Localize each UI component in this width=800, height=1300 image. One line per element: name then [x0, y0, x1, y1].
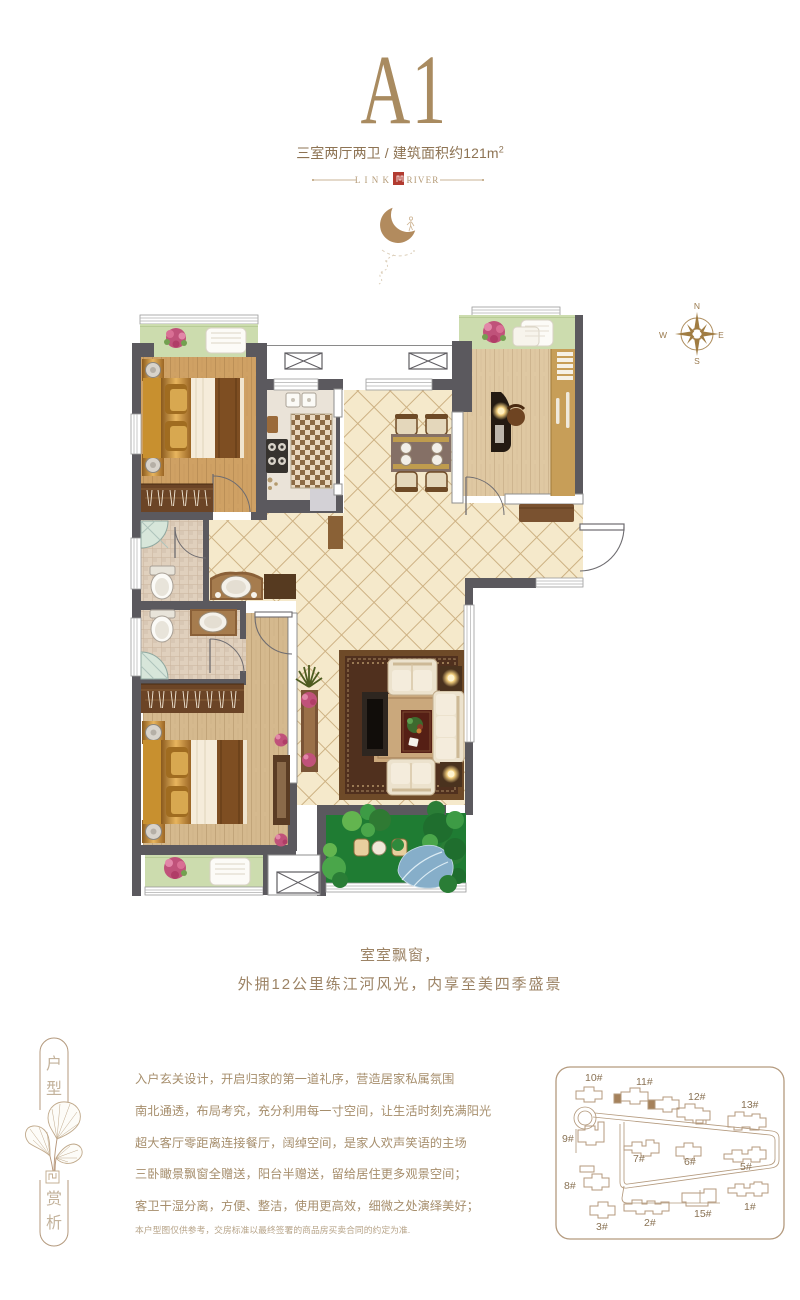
svg-text:W: W — [659, 330, 667, 340]
svg-text:13#: 13# — [741, 1099, 759, 1111]
svg-text:1#: 1# — [744, 1201, 756, 1213]
svg-text:10#: 10# — [585, 1072, 603, 1084]
svg-text:E: E — [718, 330, 724, 340]
svg-text:2#: 2# — [644, 1217, 656, 1229]
svg-text:型: 型 — [46, 1080, 62, 1098]
svg-text:11#: 11# — [636, 1076, 653, 1088]
svg-text:6#: 6# — [684, 1156, 696, 1168]
svg-text:7#: 7# — [633, 1153, 645, 1165]
svg-text:析: 析 — [46, 1214, 62, 1232]
svg-text:户: 户 — [46, 1055, 62, 1073]
svg-text:RIVER: RIVER — [407, 175, 440, 185]
svg-text:3#: 3# — [596, 1221, 608, 1233]
svg-text:9#: 9# — [562, 1133, 574, 1145]
svg-text:5#: 5# — [740, 1161, 752, 1173]
svg-text:8#: 8# — [564, 1180, 576, 1192]
svg-text:LINK: LINK — [355, 175, 393, 185]
svg-text:15#: 15# — [694, 1208, 712, 1220]
svg-text:S: S — [694, 356, 700, 366]
svg-text:赏: 赏 — [46, 1190, 62, 1208]
svg-text:12#: 12# — [688, 1091, 706, 1103]
svg-text:N: N — [694, 301, 700, 311]
